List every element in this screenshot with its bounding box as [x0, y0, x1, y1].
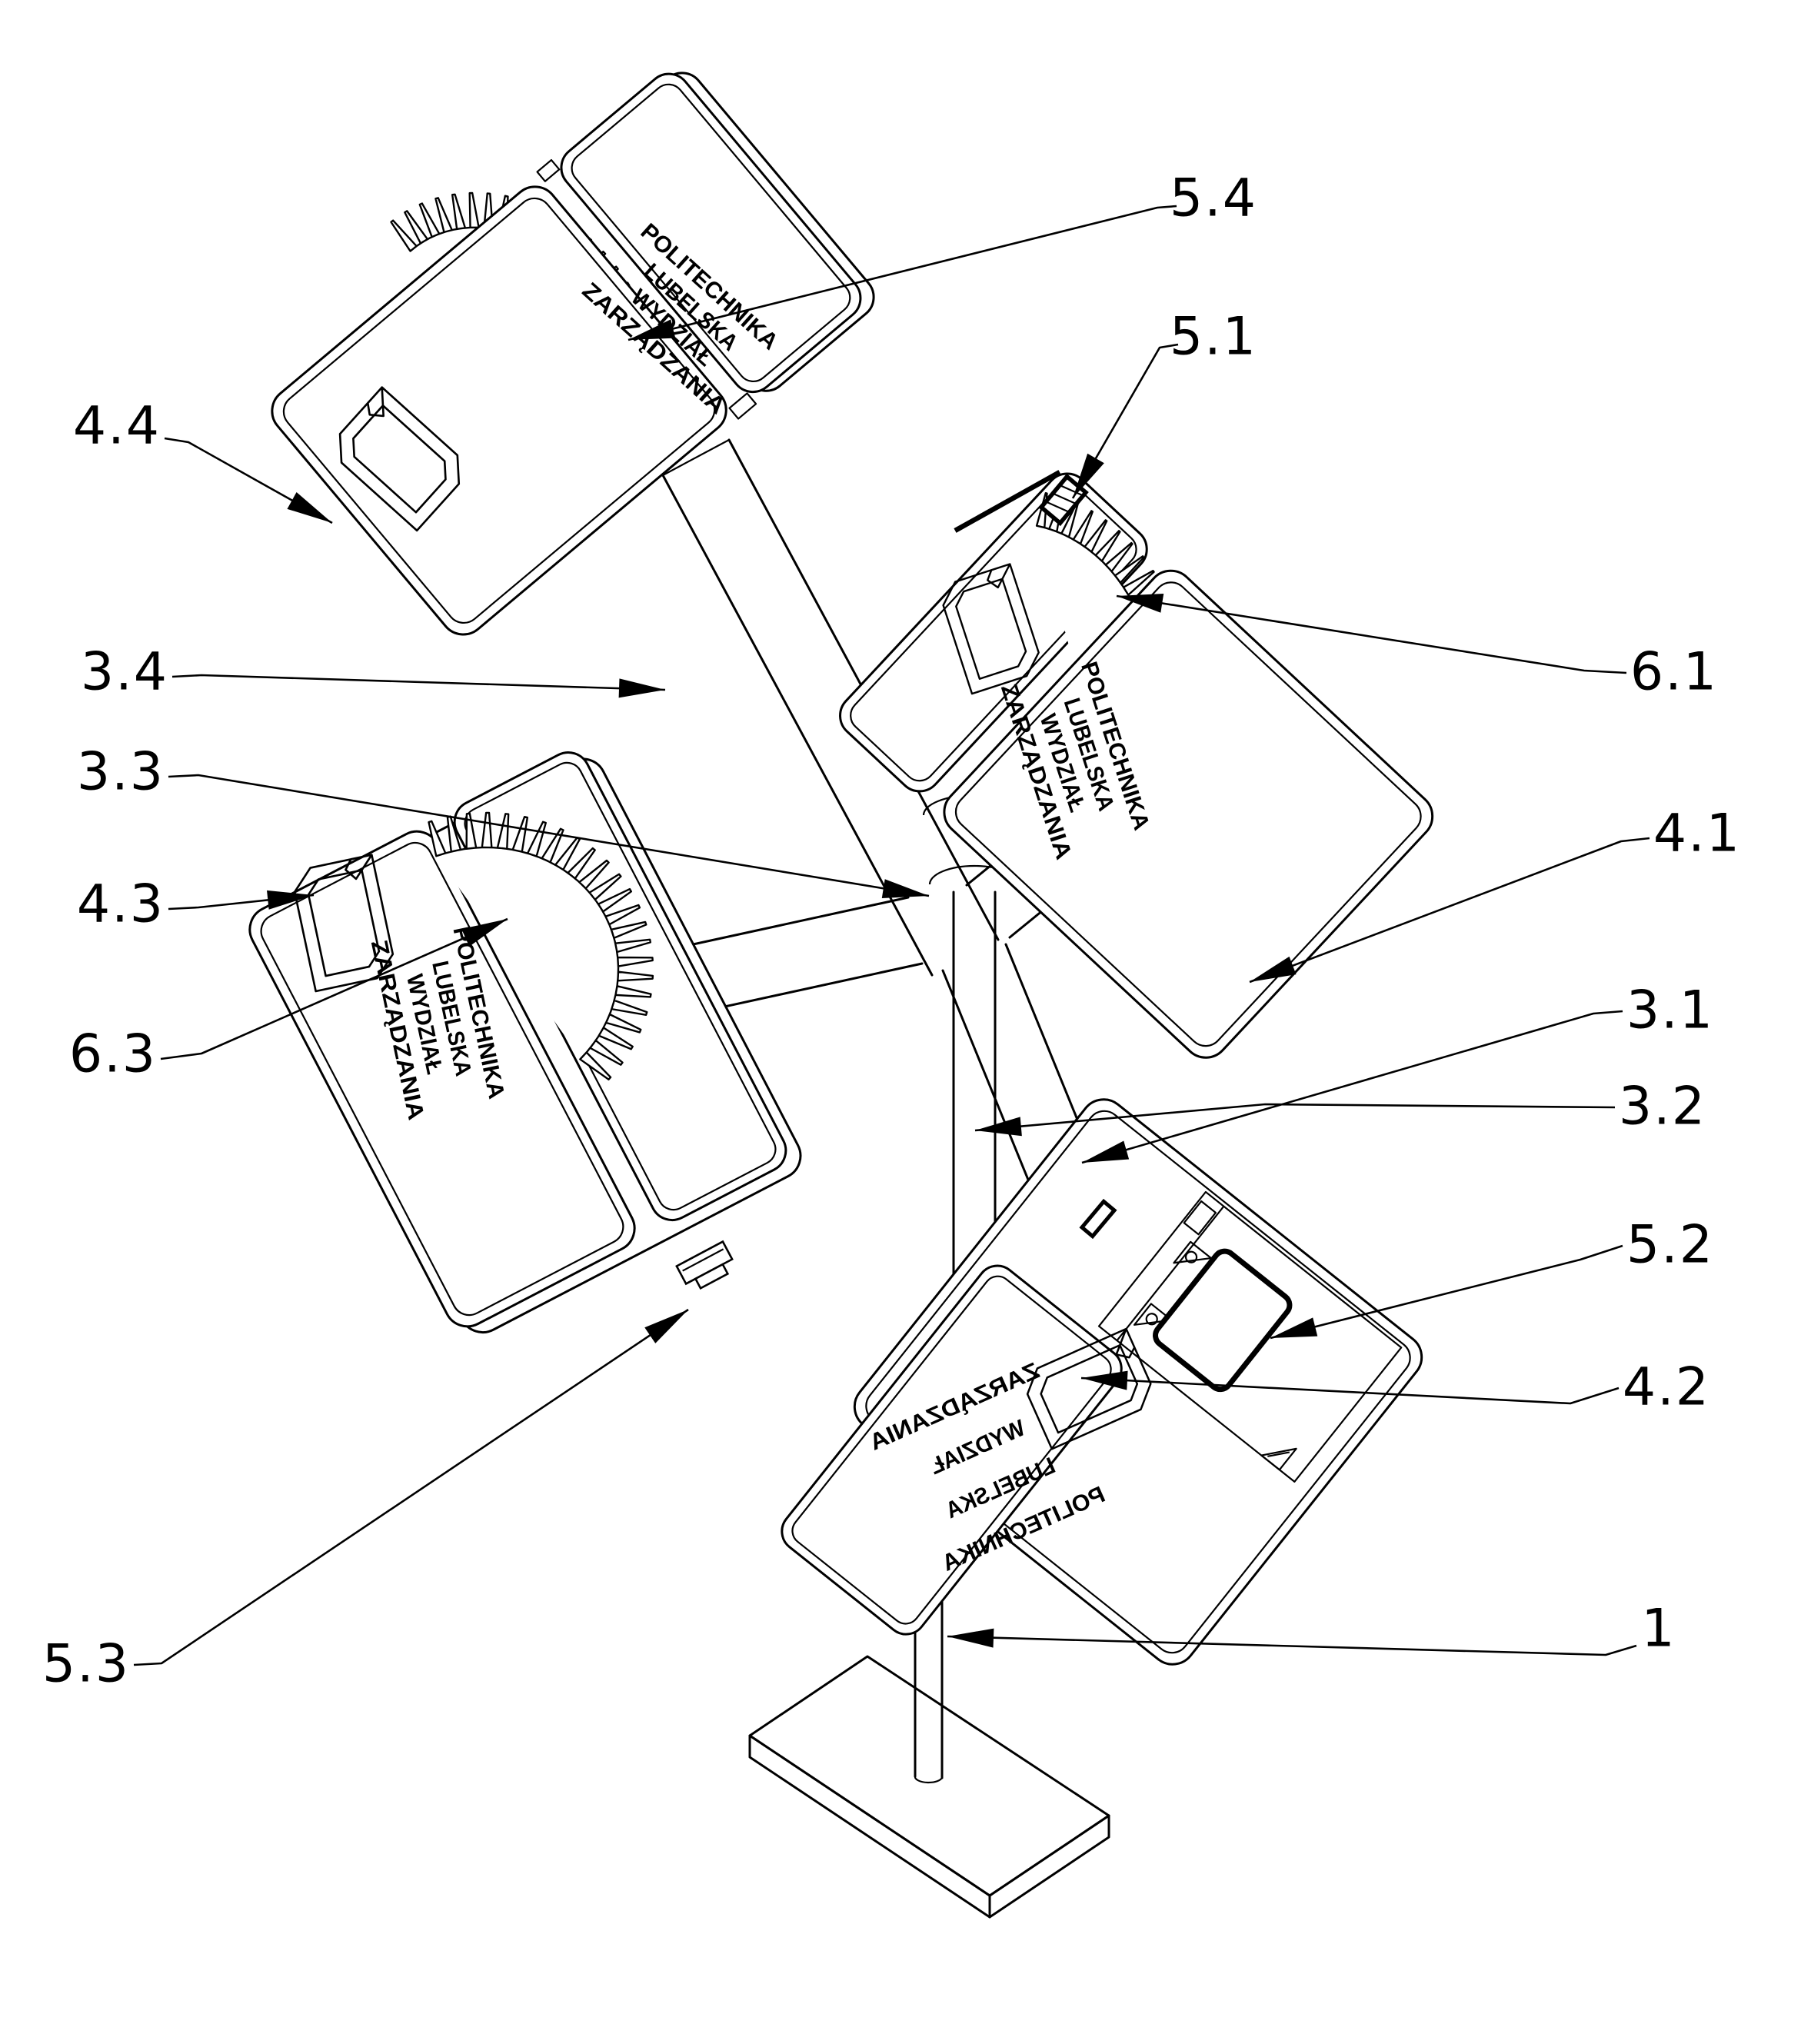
leader-3-4 [172, 675, 665, 690]
leader-1 [947, 1636, 1636, 1655]
label-5-3: 5.3 [42, 1634, 130, 1695]
arrow-4-4 [287, 492, 337, 531]
base-top-face [750, 1656, 1109, 1896]
label-3-2: 3.2 [1619, 1077, 1706, 1137]
leader-5-3 [134, 1310, 688, 1665]
label-3-1: 3.1 [1626, 980, 1714, 1041]
arrow-3-2 [974, 1117, 1022, 1140]
pole-bottom-cap [915, 1776, 942, 1783]
label-4-3: 4.3 [77, 874, 165, 935]
label-6-1: 6.1 [1630, 642, 1718, 703]
label-3-3: 3.3 [77, 742, 165, 803]
label-5-2: 5.2 [1626, 1215, 1714, 1276]
label-4-4: 4.4 [73, 396, 161, 457]
arrow-3-4 [619, 678, 666, 699]
panel-top-hinge-tab-upper [538, 160, 560, 181]
label-4-1: 4.1 [1653, 804, 1741, 864]
panel-top-hinge-tab-lower [730, 393, 757, 418]
label-4-2: 4.2 [1623, 1357, 1710, 1418]
label-5-1: 5.1 [1170, 307, 1257, 368]
latch-5-3 [677, 1242, 737, 1293]
figure-canvas: POLITECHNIKA LUBELSKA WYDZIAŁ ZARZĄDZANI… [0, 0, 1801, 2044]
leader-3-1 [1082, 1011, 1623, 1163]
label-3-4: 3.4 [81, 642, 168, 703]
arrow-5-3 [644, 1302, 694, 1343]
label-1: 1 [1641, 1599, 1676, 1660]
base-left-side [750, 1736, 990, 1917]
arrow-1 [947, 1627, 994, 1648]
label-6-3: 6.3 [69, 1024, 157, 1085]
base-right-side [990, 1816, 1109, 1917]
label-5-4: 5.4 [1170, 168, 1257, 229]
base-plate [750, 1656, 1109, 1917]
